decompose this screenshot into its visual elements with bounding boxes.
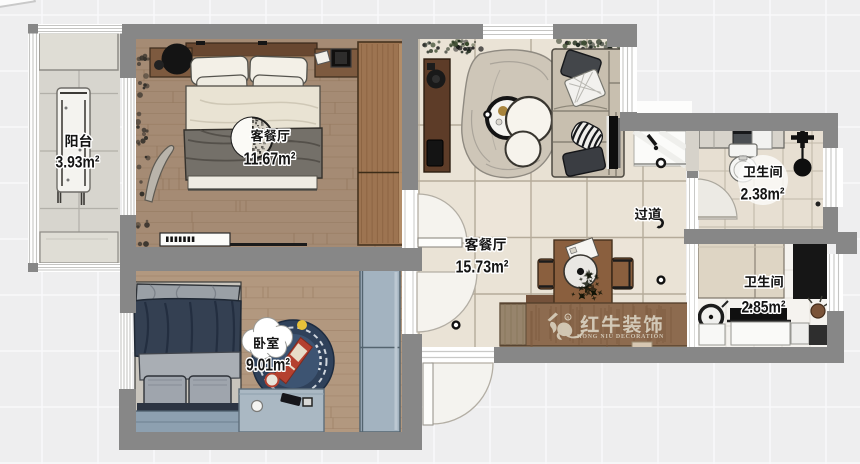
svg-text:15.73m²: 15.73m²: [456, 257, 509, 277]
svg-text:3.93m²: 3.93m²: [56, 153, 100, 172]
svg-text:2.38m²: 2.38m²: [741, 185, 785, 204]
svg-text:HONG NIU DECORATION: HONG NIU DECORATION: [577, 334, 664, 340]
svg-text:2.85m²: 2.85m²: [742, 298, 786, 317]
svg-text:11.67m²: 11.67m²: [244, 149, 296, 169]
svg-text:9.01m²: 9.01m²: [246, 355, 290, 375]
